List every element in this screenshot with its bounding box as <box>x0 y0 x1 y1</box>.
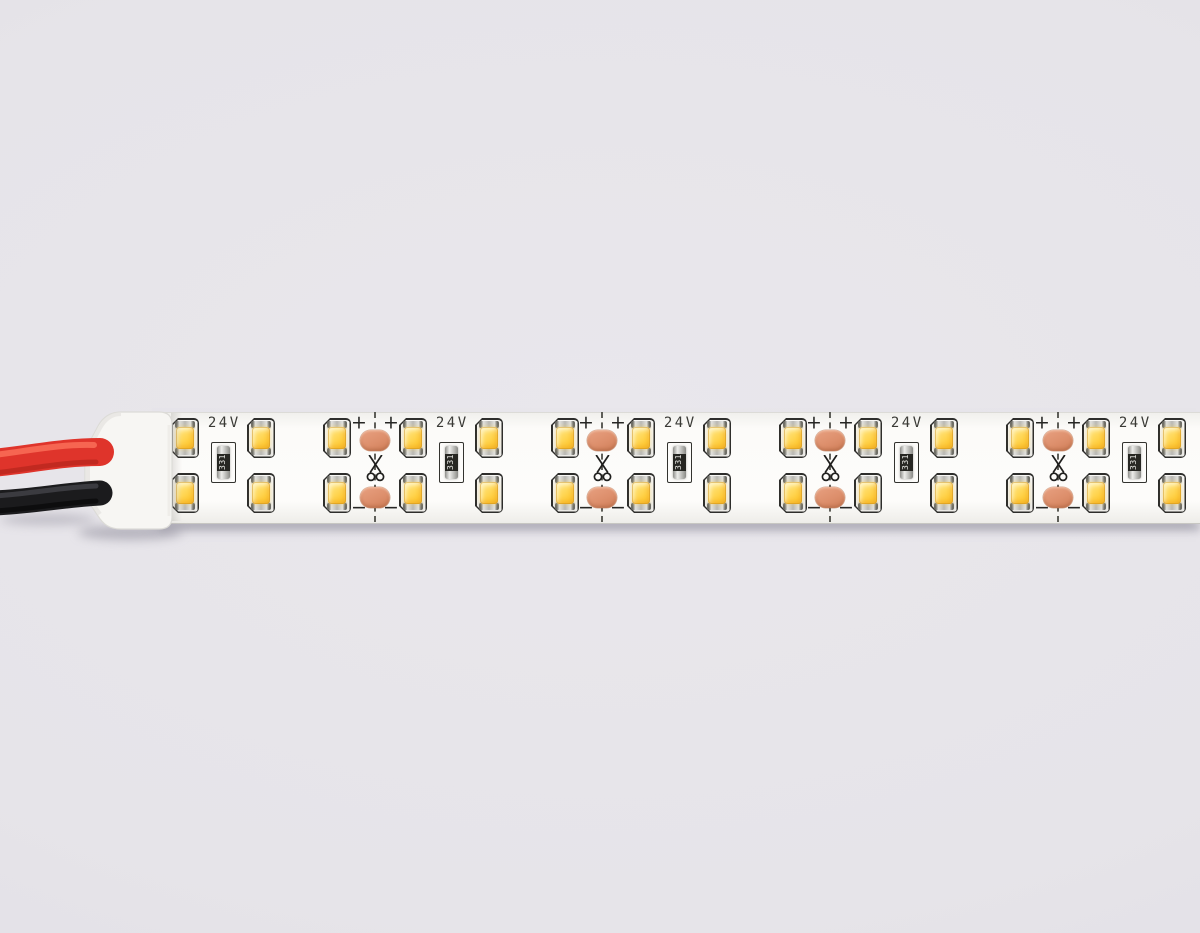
led-phosphor <box>1087 427 1105 449</box>
resistor-terminal <box>1128 446 1141 454</box>
led-electrode-bottom <box>934 448 954 455</box>
voltage-label: 24V <box>888 415 923 431</box>
led-electrode-bottom <box>707 503 727 510</box>
resistor-band: 331 <box>445 454 458 471</box>
voltage-label: 24V <box>433 415 468 431</box>
led-phosphor <box>480 482 498 504</box>
led-chip <box>399 418 427 458</box>
resistor-code: 331 <box>219 454 227 470</box>
minus-mark: − <box>1034 499 1050 518</box>
resistor: 331 <box>900 446 913 479</box>
led-electrode-bottom <box>1086 503 1106 510</box>
led-phosphor <box>252 482 270 504</box>
led-chip <box>399 473 427 513</box>
resistor-band: 331 <box>1128 454 1141 471</box>
scissors-icon <box>1049 455 1068 484</box>
resistor: 331 <box>445 446 458 479</box>
resistor-terminal <box>673 471 686 479</box>
plus-mark: + <box>1034 414 1050 433</box>
led-electrode-bottom <box>1010 503 1030 510</box>
led-electrode-bottom <box>1086 448 1106 455</box>
resistor-terminal <box>900 471 913 479</box>
led-electrode-bottom <box>403 448 423 455</box>
led-electrode-bottom <box>251 448 271 455</box>
led-phosphor <box>252 427 270 449</box>
led-electrode-bottom <box>1162 448 1182 455</box>
led-phosphor <box>935 427 953 449</box>
led-chip <box>779 418 807 458</box>
led-phosphor <box>328 482 346 504</box>
resistor-terminal <box>445 471 458 479</box>
led-chip <box>779 473 807 513</box>
led-phosphor <box>404 427 422 449</box>
resistor-code: 331 <box>1130 454 1138 470</box>
voltage-label: 24V <box>1116 415 1151 431</box>
resistor-code: 331 <box>447 454 455 470</box>
led-chip <box>1006 473 1034 513</box>
led-chip <box>1006 418 1034 458</box>
wire-red <box>0 445 100 473</box>
resistor-terminal <box>673 446 686 454</box>
minus-mark: − <box>383 499 399 518</box>
led-phosphor <box>1011 427 1029 449</box>
minus-mark: − <box>1066 499 1082 518</box>
led-chip <box>1158 418 1186 458</box>
led-chip <box>1158 473 1186 513</box>
led-chip <box>551 418 579 458</box>
led-phosphor <box>1163 482 1181 504</box>
led-chip <box>1082 473 1110 513</box>
led-chip <box>703 418 731 458</box>
plus-mark: + <box>838 414 854 433</box>
resistor-band: 331 <box>673 454 686 471</box>
power-wires <box>0 425 150 530</box>
led-chip <box>323 418 351 458</box>
minus-mark: − <box>578 499 594 518</box>
led-electrode-bottom <box>327 503 347 510</box>
scissors-icon <box>593 455 612 484</box>
led-chip <box>1082 418 1110 458</box>
led-electrode-bottom <box>631 448 651 455</box>
led-electrode-bottom <box>934 503 954 510</box>
plus-mark: + <box>806 414 822 433</box>
resistor-band: 331 <box>217 454 230 471</box>
led-electrode-bottom <box>1010 448 1030 455</box>
led-chip <box>247 418 275 458</box>
voltage-label: 24V <box>205 415 240 431</box>
voltage-label: 24V <box>661 415 696 431</box>
resistor-terminal <box>217 471 230 479</box>
resistor-terminal <box>217 446 230 454</box>
led-phosphor <box>935 482 953 504</box>
wire-black <box>0 486 100 511</box>
led-chip <box>703 473 731 513</box>
led-chip <box>854 418 882 458</box>
scissors-icon <box>366 455 385 484</box>
resistor-band: 331 <box>900 454 913 471</box>
led-phosphor <box>1163 427 1181 449</box>
plus-mark: + <box>610 414 626 433</box>
led-chip <box>475 418 503 458</box>
led-electrode-bottom <box>783 448 803 455</box>
led-phosphor <box>328 427 346 449</box>
led-chip <box>323 473 351 513</box>
led-electrode-bottom <box>707 448 727 455</box>
led-phosphor <box>784 482 802 504</box>
led-phosphor <box>556 482 574 504</box>
resistor: 331 <box>673 446 686 479</box>
led-phosphor <box>1087 482 1105 504</box>
plus-mark: + <box>351 414 367 433</box>
resistor: 331 <box>217 446 230 479</box>
led-phosphor <box>784 427 802 449</box>
led-chip <box>930 418 958 458</box>
minus-mark: − <box>806 499 822 518</box>
led-phosphor <box>1011 482 1029 504</box>
led-electrode-bottom <box>631 503 651 510</box>
led-phosphor <box>859 482 877 504</box>
led-electrode-bottom <box>783 503 803 510</box>
led-phosphor <box>632 427 650 449</box>
plus-mark: + <box>383 414 399 433</box>
led-electrode-bottom <box>555 503 575 510</box>
led-phosphor <box>404 482 422 504</box>
led-electrode-bottom <box>403 503 423 510</box>
led-chip <box>475 473 503 513</box>
led-electrode-bottom <box>327 448 347 455</box>
plus-mark: + <box>578 414 594 433</box>
led-chip <box>627 473 655 513</box>
led-phosphor <box>708 482 726 504</box>
led-phosphor <box>708 427 726 449</box>
led-phosphor <box>556 427 574 449</box>
minus-mark: − <box>351 499 367 518</box>
led-chip <box>930 473 958 513</box>
led-electrode-bottom <box>1162 503 1182 510</box>
led-electrode-bottom <box>858 448 878 455</box>
product-photo: ++−−++−−++−−++−−24V33124V33124V33124V331… <box>0 0 1200 933</box>
led-chip <box>627 418 655 458</box>
led-electrode-bottom <box>251 503 271 510</box>
led-chip <box>551 473 579 513</box>
resistor-terminal <box>445 446 458 454</box>
led-electrode-bottom <box>479 503 499 510</box>
led-electrode-bottom <box>858 503 878 510</box>
led-phosphor <box>859 427 877 449</box>
resistor: 331 <box>1128 446 1141 479</box>
led-chip <box>247 473 275 513</box>
minus-mark: − <box>838 499 854 518</box>
scissors-icon <box>821 455 840 484</box>
led-phosphor <box>632 482 650 504</box>
plus-mark: + <box>1066 414 1082 433</box>
resistor-code: 331 <box>902 454 910 470</box>
minus-mark: − <box>610 499 626 518</box>
led-electrode-bottom <box>479 448 499 455</box>
resistor-code: 331 <box>675 454 683 470</box>
resistor-terminal <box>1128 471 1141 479</box>
led-chip <box>854 473 882 513</box>
led-electrode-bottom <box>555 448 575 455</box>
led-phosphor <box>480 427 498 449</box>
resistor-terminal <box>900 446 913 454</box>
